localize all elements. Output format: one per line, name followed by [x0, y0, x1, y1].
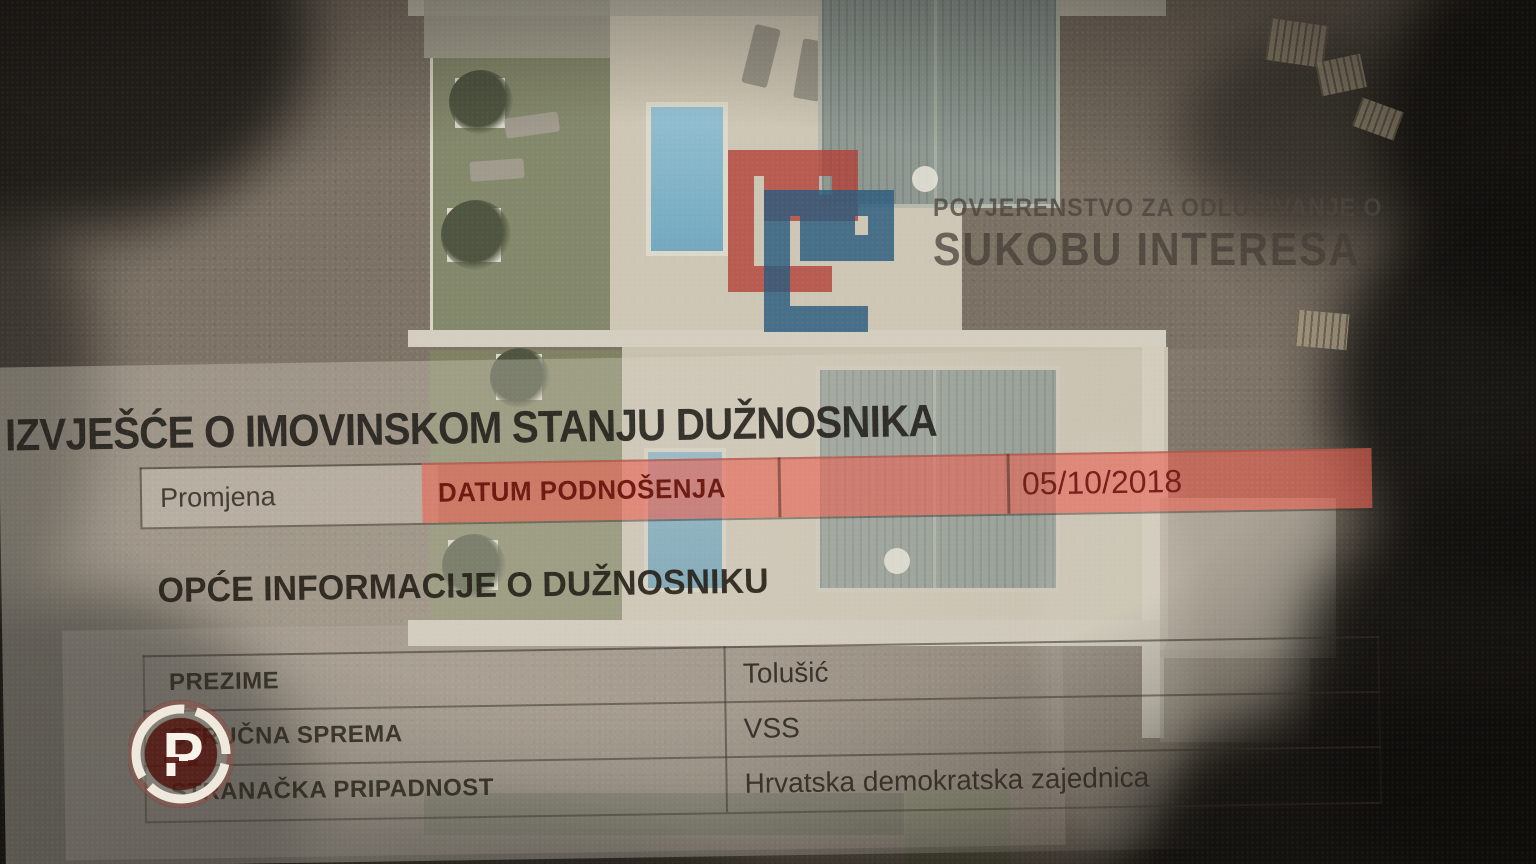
- badge-letter: P: [162, 721, 203, 790]
- cell-divider: [777, 457, 781, 517]
- table-border: [1377, 636, 1382, 802]
- tv-frame: POVJERENSTVO ZA ODLUČIVANJE O SUKOBU INT…: [0, 0, 1536, 864]
- stencil-cut: [164, 757, 179, 763]
- field-value-surname: Tolušić: [742, 636, 1363, 701]
- field-value-party: Hrvatska demokratska zajednica: [744, 746, 1365, 811]
- stencil-cut: [188, 760, 198, 766]
- change-label: Promjena: [160, 481, 276, 513]
- field-label-education: STRUČNA SPREMA: [169, 701, 710, 764]
- change-cell: Promjena: [142, 465, 439, 528]
- field-label-surname: PREZIME: [169, 646, 710, 709]
- field-value-education: VSS: [743, 691, 1364, 756]
- field-label-party: STRANAČKA PRIPADNOST: [170, 756, 711, 819]
- cell-divider: [1006, 454, 1010, 514]
- submission-date-label: DATUM PODNOŠENJA: [438, 458, 727, 523]
- submission-date-value: 05/10/2018: [1021, 451, 1182, 514]
- provjereno-logo-icon: P: [128, 700, 234, 808]
